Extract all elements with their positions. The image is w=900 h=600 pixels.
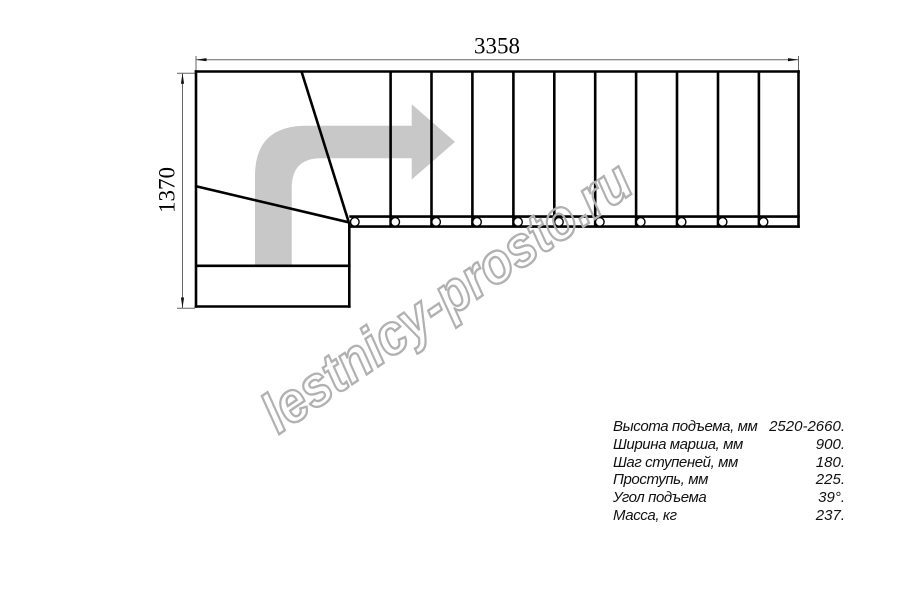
svg-text:3358: 3358 — [474, 34, 520, 59]
svg-text:1370: 1370 — [155, 167, 180, 213]
